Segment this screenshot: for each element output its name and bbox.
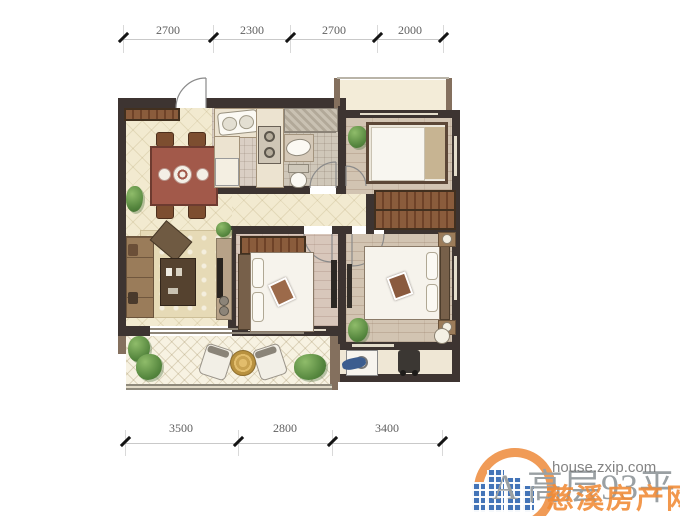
- kitchen-sink: [217, 109, 259, 136]
- window: [454, 136, 457, 176]
- wall-tv: [347, 264, 352, 308]
- sink-basin: [238, 114, 254, 129]
- pillow: [426, 252, 438, 280]
- burner: [264, 131, 275, 142]
- wall-living-bottom-left: [118, 326, 150, 336]
- window: [352, 344, 394, 347]
- window: [454, 256, 457, 300]
- bed-duvet: [371, 127, 425, 181]
- dining-chair: [156, 204, 174, 219]
- dining-chair: [188, 132, 206, 147]
- dim-label: 2000: [380, 23, 440, 38]
- shower-glass: [284, 131, 336, 133]
- plate: [158, 168, 171, 181]
- watermark-site-name: 慈溪房产网: [546, 477, 680, 516]
- dining-chair: [156, 132, 174, 147]
- wardrobe: [374, 190, 456, 211]
- coffee-table: [160, 258, 196, 306]
- dim-label: 2800: [255, 421, 315, 436]
- dim-label: 3400: [357, 421, 417, 436]
- wall-balcony-top-right: [446, 78, 452, 110]
- burner: [264, 147, 275, 158]
- stove: [258, 126, 281, 164]
- watermark-url: house.zxip.com: [552, 459, 656, 476]
- laundry-cart: [398, 350, 420, 373]
- table-item: [176, 268, 182, 276]
- wall-top-dining: [118, 98, 176, 108]
- floor-plan-canvas: 2700 2300 2700 2000 3500 2800 3400: [0, 0, 680, 516]
- speaker: [219, 296, 229, 306]
- wall-top-kitchen-bath: [206, 98, 346, 108]
- table-centerpiece: [173, 165, 192, 184]
- wheel: [412, 370, 418, 376]
- shower: [284, 108, 338, 132]
- wall-hall-end: [366, 194, 374, 234]
- pillow: [426, 284, 438, 312]
- wall-corner: [336, 186, 346, 194]
- dim-line-bottom: [125, 443, 442, 444]
- sliding-door-line: [150, 332, 304, 334]
- wall-stub: [346, 226, 352, 234]
- wardrobe: [374, 209, 456, 230]
- balcony-top-edge: [337, 77, 449, 79]
- wall-bath-bedroom: [338, 106, 346, 194]
- balcony-top-floor: [340, 80, 446, 110]
- sink-basin: [221, 116, 237, 131]
- bed: [366, 122, 448, 184]
- dining-chair: [188, 204, 206, 219]
- pillow: [252, 292, 264, 322]
- plate: [196, 168, 209, 181]
- dim-label: 3500: [151, 421, 211, 436]
- hallway-floor: [232, 194, 366, 226]
- bed-blanket: [425, 127, 445, 179]
- wall-tv: [331, 260, 337, 308]
- entry-door: [176, 78, 206, 108]
- sofa-pillow: [128, 244, 138, 256]
- toilet: [290, 172, 307, 188]
- wheel: [400, 370, 406, 376]
- balcony-railing: [126, 384, 332, 390]
- wall-left: [118, 98, 126, 330]
- balcony-table: [230, 350, 256, 376]
- sofa-pillow: [128, 292, 138, 304]
- dim-label: 2700: [138, 23, 198, 38]
- pillow: [252, 258, 264, 288]
- dim-label: 2700: [304, 23, 364, 38]
- wall-balcony-right: [330, 336, 338, 390]
- bed-headboard: [440, 246, 450, 320]
- dim-line-top: [123, 39, 443, 40]
- fridge: [215, 158, 239, 186]
- table-item: [168, 288, 178, 294]
- table-item: [166, 268, 172, 276]
- lamp: [442, 234, 452, 244]
- speaker: [219, 306, 229, 316]
- wall-hall-bedrooms: [228, 226, 304, 234]
- tv: [217, 258, 223, 298]
- dining-sideboard: [124, 108, 180, 121]
- logo-building-icon: [472, 482, 485, 512]
- side-table: [434, 328, 450, 344]
- window: [360, 113, 438, 115]
- dim-label: 2300: [222, 23, 282, 38]
- wall-stub: [332, 226, 346, 234]
